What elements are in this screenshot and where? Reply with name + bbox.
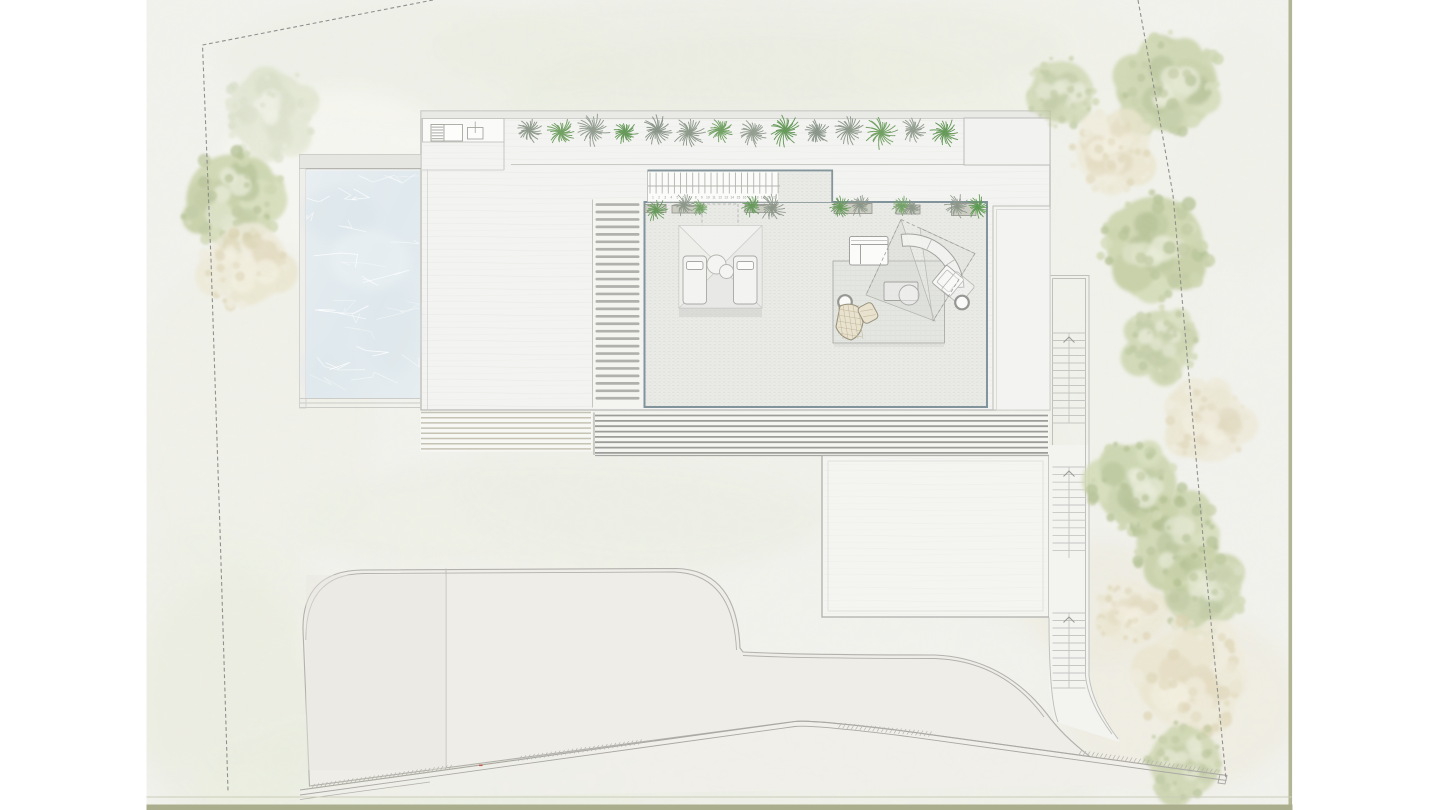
svg-text:14: 14 — [730, 196, 734, 200]
svg-text:15: 15 — [737, 196, 741, 200]
svg-text:4: 4 — [670, 196, 672, 200]
svg-text:10: 10 — [706, 196, 710, 200]
svg-text:2: 2 — [658, 196, 660, 200]
svg-text:11: 11 — [712, 196, 716, 200]
svg-text:12: 12 — [718, 196, 722, 200]
svg-text:8: 8 — [695, 196, 697, 200]
svg-text:5: 5 — [676, 196, 678, 200]
svg-text:1: 1 — [652, 196, 654, 200]
svg-text:16: 16 — [743, 196, 747, 200]
svg-text:9: 9 — [701, 196, 703, 200]
svg-text:13: 13 — [724, 196, 728, 200]
svg-text:3: 3 — [664, 196, 666, 200]
